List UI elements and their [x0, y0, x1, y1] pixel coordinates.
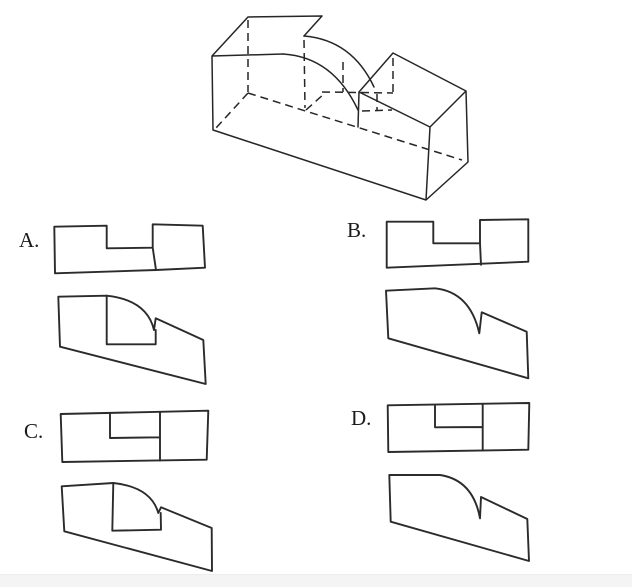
option-d-top-view-inner-edges	[435, 404, 483, 451]
option-b-front-view	[386, 288, 528, 378]
iso-front-arc	[283, 54, 358, 110]
option-b-top-view-inner-edge	[480, 243, 481, 264]
option-b-top-view	[387, 219, 529, 267]
option-d-label: D.	[351, 406, 371, 430]
option-a[interactable]: A.	[19, 224, 206, 384]
option-c-front-view	[62, 483, 212, 571]
figure-canvas: A. B. C. D.	[0, 0, 632, 587]
option-c-top-view	[61, 411, 209, 462]
page-bottom-strip	[0, 574, 632, 587]
option-a-front-view	[58, 296, 205, 384]
option-d-front-view	[389, 475, 529, 561]
isometric-view	[212, 16, 468, 200]
option-a-label: A.	[19, 228, 39, 252]
option-b-label: B.	[347, 218, 366, 242]
iso-solid-edges	[212, 16, 468, 200]
option-c[interactable]: C.	[24, 411, 212, 571]
option-c-front-view-inner-edges	[112, 483, 161, 531]
option-c-top-view-inner-edges	[110, 413, 160, 461]
question-figure-page: A. B. C. D.	[0, 0, 632, 587]
option-a-top-view-inner-edge	[153, 248, 156, 270]
option-d[interactable]: D.	[351, 403, 529, 561]
option-b[interactable]: B.	[347, 218, 528, 378]
iso-hidden-edges	[216, 20, 462, 160]
option-a-top-view	[54, 224, 205, 273]
option-c-label: C.	[24, 419, 43, 443]
